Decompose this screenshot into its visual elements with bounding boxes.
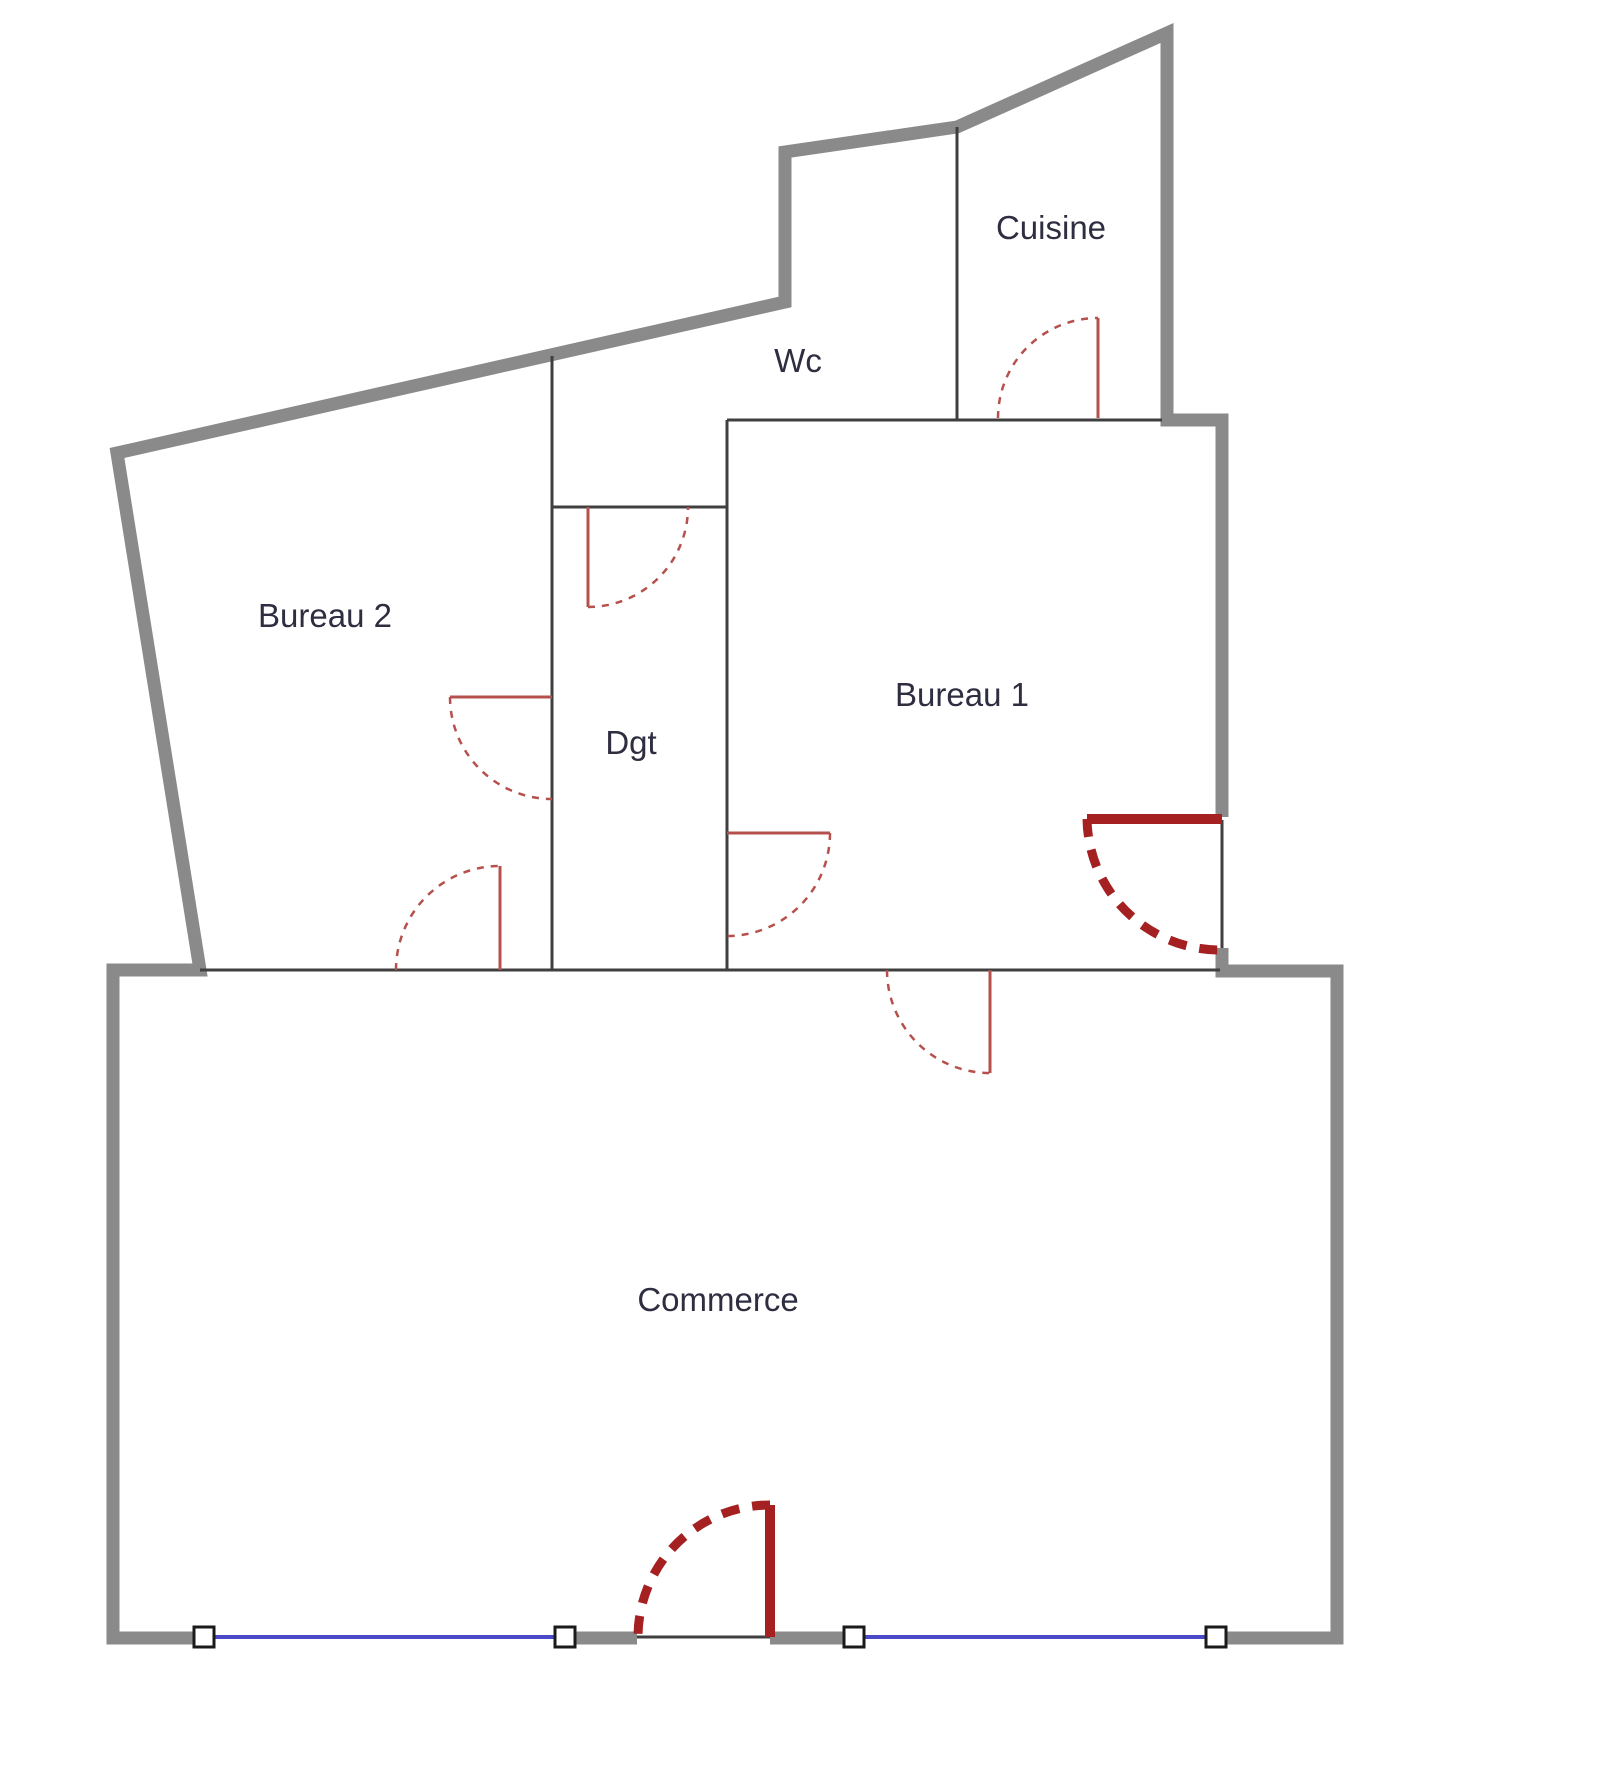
window-marker-3 [844, 1627, 864, 1647]
window-marker-2 [555, 1627, 575, 1647]
wc-door-arc [588, 507, 688, 607]
bureau1-commerce-door-arc [887, 970, 990, 1073]
room-label-wc: Wc [774, 342, 822, 379]
room-label-dgt: Dgt [605, 724, 656, 761]
dgt-bureau1-door-arc [727, 833, 830, 936]
cuisine-door-arc [998, 318, 1098, 418]
window-marker-4 [1206, 1627, 1226, 1647]
bureau1-entrance-door-arc [1087, 819, 1220, 950]
floor-plan-svg: Cuisine Wc Bureau 2 Dgt Bureau 1 Commerc… [0, 0, 1600, 1790]
outer-wall-top [113, 33, 1222, 1638]
room-label-commerce: Commerce [637, 1281, 798, 1318]
bureau2-commerce-door-arc [396, 866, 500, 970]
room-labels: Cuisine Wc Bureau 2 Dgt Bureau 1 Commerc… [258, 209, 1106, 1318]
outer-wall-right [1222, 948, 1337, 1638]
room-label-bureau1: Bureau 1 [895, 676, 1029, 713]
commerce-entrance-door-arc [638, 1505, 770, 1637]
floor-plan-canvas: Cuisine Wc Bureau 2 Dgt Bureau 1 Commerc… [0, 0, 1600, 1790]
outer-walls [113, 33, 1337, 1638]
room-label-cuisine: Cuisine [996, 209, 1106, 246]
room-label-bureau2: Bureau 2 [258, 597, 392, 634]
window-marker-1 [194, 1627, 214, 1647]
bureau2-dgt-door-arc [450, 697, 552, 799]
interior-walls [200, 127, 1222, 1637]
